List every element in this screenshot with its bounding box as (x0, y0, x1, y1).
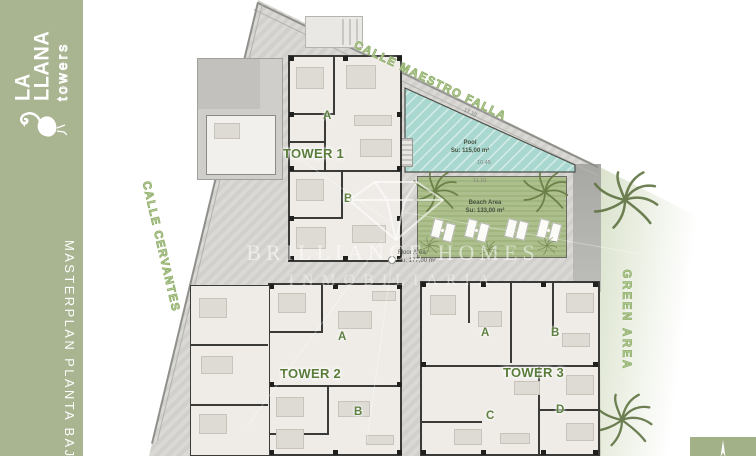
diamond-icon (335, 178, 455, 244)
watermark-line1: BRILLIANCE HOMES (243, 240, 543, 266)
bed (276, 429, 304, 449)
sofa (201, 356, 233, 374)
bed (278, 293, 306, 313)
north-arrow-icon (716, 438, 730, 456)
bed (276, 397, 304, 417)
sofa (514, 381, 540, 395)
wall (290, 170, 400, 172)
masterplan-title: MASTERPLAN PLANTA BAJA (62, 240, 77, 456)
watermark-line2: INMOBILIARIA (243, 272, 543, 290)
kitchen-counter (500, 433, 530, 444)
beach-top-dim: 11.10 (473, 178, 486, 184)
kitchen-counter (372, 291, 396, 301)
green-area-label: GREEN AREA (620, 265, 632, 375)
side-table (547, 229, 550, 232)
kitchen-counter (366, 435, 394, 445)
wall (552, 283, 554, 333)
unit-label-t3-b: B (551, 327, 559, 339)
bush-icon (547, 246, 548, 247)
sofa (338, 311, 372, 329)
bed (199, 298, 227, 318)
bed (430, 295, 456, 315)
wall (191, 404, 268, 406)
unit-label-t2-a: A (338, 331, 346, 343)
bed (566, 423, 594, 441)
bed (199, 414, 227, 434)
sidebar: LA LLANA towers MASTERPLAN PLANTA BAJA (0, 0, 83, 456)
sofa (562, 333, 590, 347)
palm-icon (622, 420, 623, 421)
side-walkway (573, 164, 601, 292)
street-label-cervantes: CALLE CERVANTES (140, 180, 179, 300)
flamingo-icon (17, 108, 67, 142)
bed (566, 293, 594, 313)
beach-label: Beach AreaSu: 133,00 m² (445, 200, 525, 216)
furniture (214, 123, 240, 139)
pool (405, 83, 577, 175)
brand-sub: towers (54, 31, 70, 101)
annex-patch (198, 59, 260, 109)
entrance-annex (197, 58, 283, 180)
palm-icon (545, 192, 546, 193)
sofa (360, 139, 392, 157)
table (478, 311, 502, 327)
brand-logo: LA LLANA towers (3, 10, 81, 142)
wall (327, 385, 329, 435)
palm-icon (625, 200, 626, 201)
brand-text: LA LLANA towers (14, 31, 70, 101)
bed (346, 65, 376, 89)
bed (296, 179, 324, 201)
masterplan-page: LA LLANA towers MASTERPLAN PLANTA BAJA P… (0, 0, 756, 456)
bed (566, 375, 594, 395)
wall (538, 409, 598, 411)
bed (296, 67, 324, 89)
wall (510, 283, 512, 363)
tower3-label: TOWER 3 (503, 365, 564, 380)
wall (422, 421, 482, 423)
kitchen-counter (354, 115, 392, 126)
brand-line-2: LLANA (32, 31, 52, 101)
unit-label-t2-b: B (354, 406, 362, 418)
table (454, 429, 482, 445)
wall (191, 344, 268, 346)
unit-label-t3-c: D (556, 404, 564, 416)
side-table (475, 229, 478, 232)
site-plan: PoolSu: 115,00 m² 17.10 10.45 Beach Area… (83, 0, 756, 456)
unit-label-t3-d: C (486, 410, 494, 422)
pillars (289, 56, 294, 61)
wall (321, 285, 323, 333)
wall (270, 385, 400, 387)
wall (333, 57, 335, 115)
north-arrow-box (690, 437, 756, 456)
unit-label-t3-a: A (481, 327, 489, 339)
wall (324, 115, 326, 172)
pool-label: PoolSu: 115,00 m² (430, 140, 510, 156)
unit-label-t1-a: A (323, 110, 331, 122)
pool-bottom-dim: 10.45 (477, 160, 491, 166)
wall (290, 141, 326, 143)
bottom-annex (190, 285, 270, 456)
